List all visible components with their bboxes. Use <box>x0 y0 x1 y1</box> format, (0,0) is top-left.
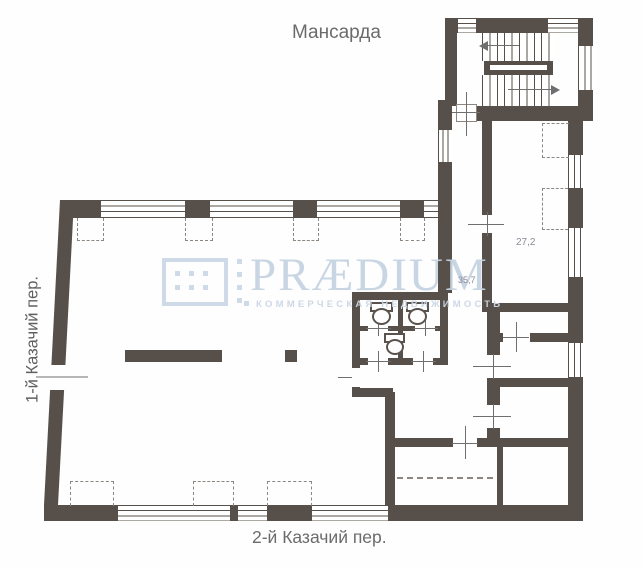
room-area-label: 35,7 <box>458 275 476 285</box>
street-label-bottom: 2-й Казачий пер. <box>252 527 387 548</box>
left-exterior-wall <box>0 0 643 568</box>
room-area-label: 27,2 <box>516 237 535 248</box>
floorplan-canvas: PRÆDIUM КОММЕРЧЕСКАЯ НЕДВИЖИМОСТЬ Мансар… <box>0 0 643 568</box>
street-label-left: 1-й Казачий пер. <box>24 250 43 430</box>
plan-title: Мансарда <box>292 22 381 44</box>
